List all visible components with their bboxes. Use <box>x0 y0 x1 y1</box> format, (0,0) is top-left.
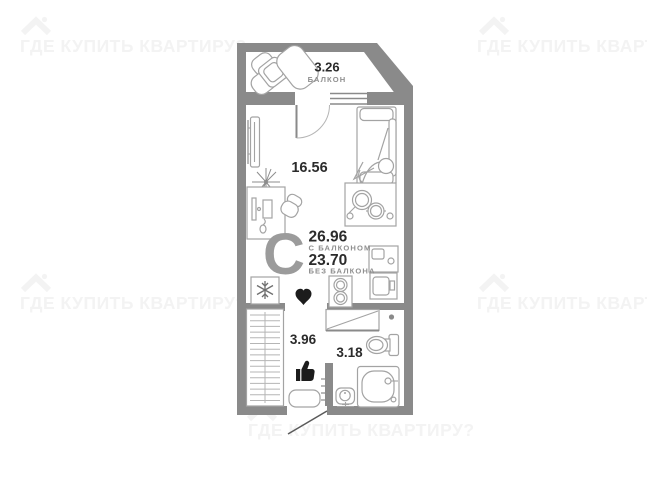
floorplan-canvas: ГДЕ КУПИТЬ КВАРТИРУ? ГДЕ КУПИТЬ КВАРТИРУ… <box>0 0 647 480</box>
wall-top <box>237 43 373 52</box>
wall-right <box>404 86 413 415</box>
heart-icon <box>296 289 312 305</box>
watermark-text: ГДЕ КУПИТЬ КВАРТИРУ? <box>248 420 475 440</box>
wall-bottom-left <box>237 406 287 415</box>
balcony-area-label: БАЛКОН <box>308 75 347 84</box>
house-logo-icon <box>23 274 49 290</box>
tv-unit <box>248 117 260 167</box>
watermark-mid-left: ГДЕ КУПИТЬ КВАРТИРУ? <box>20 274 247 313</box>
hallway-area-value: 3.96 <box>290 332 317 347</box>
watermark-text: ГДЕ КУПИТЬ КВАРТИРУ? <box>477 293 647 313</box>
thumbs-up-icon <box>296 361 315 381</box>
bathroom-area-value: 3.18 <box>336 345 363 360</box>
house-logo-icon <box>481 274 507 290</box>
wardrobe <box>247 309 284 406</box>
watermark-text: ГДЕ КУПИТЬ КВАРТИРУ? <box>20 36 247 56</box>
wall-facade-right <box>367 92 413 105</box>
studio-type-letter: С <box>263 222 305 287</box>
stove <box>329 276 352 307</box>
watermark-mid-right: ГДЕ КУПИТЬ КВАРТИРУ? <box>477 274 647 313</box>
floorplan-svg: ГДЕ КУПИТЬ КВАРТИРУ? ГДЕ КУПИТЬ КВАРТИРУ… <box>0 0 647 480</box>
wall-dot <box>389 314 394 319</box>
toilet <box>367 335 399 356</box>
watermark-text: ГДЕ КУПИТЬ КВАРТИРУ? <box>477 36 647 56</box>
house-logo-icon <box>481 17 507 33</box>
house-logo-icon <box>23 17 49 33</box>
bathroom-sink <box>336 388 355 407</box>
kitchen-sink-unit <box>370 273 397 299</box>
door-mat <box>289 390 320 407</box>
kitchen-counter <box>345 183 396 226</box>
wall-bath-left <box>325 363 333 406</box>
wall-facade-left <box>237 92 295 105</box>
sofa-bed <box>357 107 396 185</box>
washing-machine <box>326 310 379 331</box>
watermark-top-left: ГДЕ КУПИТЬ КВАРТИРУ? <box>20 17 247 56</box>
window <box>330 94 367 105</box>
watermark-top-right: ГДЕ КУПИТЬ КВАРТИРУ? <box>477 17 647 56</box>
living-area-value: 16.56 <box>291 160 327 176</box>
balcony-door <box>297 105 330 138</box>
bathtub <box>358 367 400 408</box>
total-without-balcony-label: БЕЗ БАЛКОНА <box>309 267 376 276</box>
balcony-area-value: 3.26 <box>314 60 339 75</box>
watermark-text: ГДЕ КУПИТЬ КВАРТИРУ? <box>20 293 247 313</box>
